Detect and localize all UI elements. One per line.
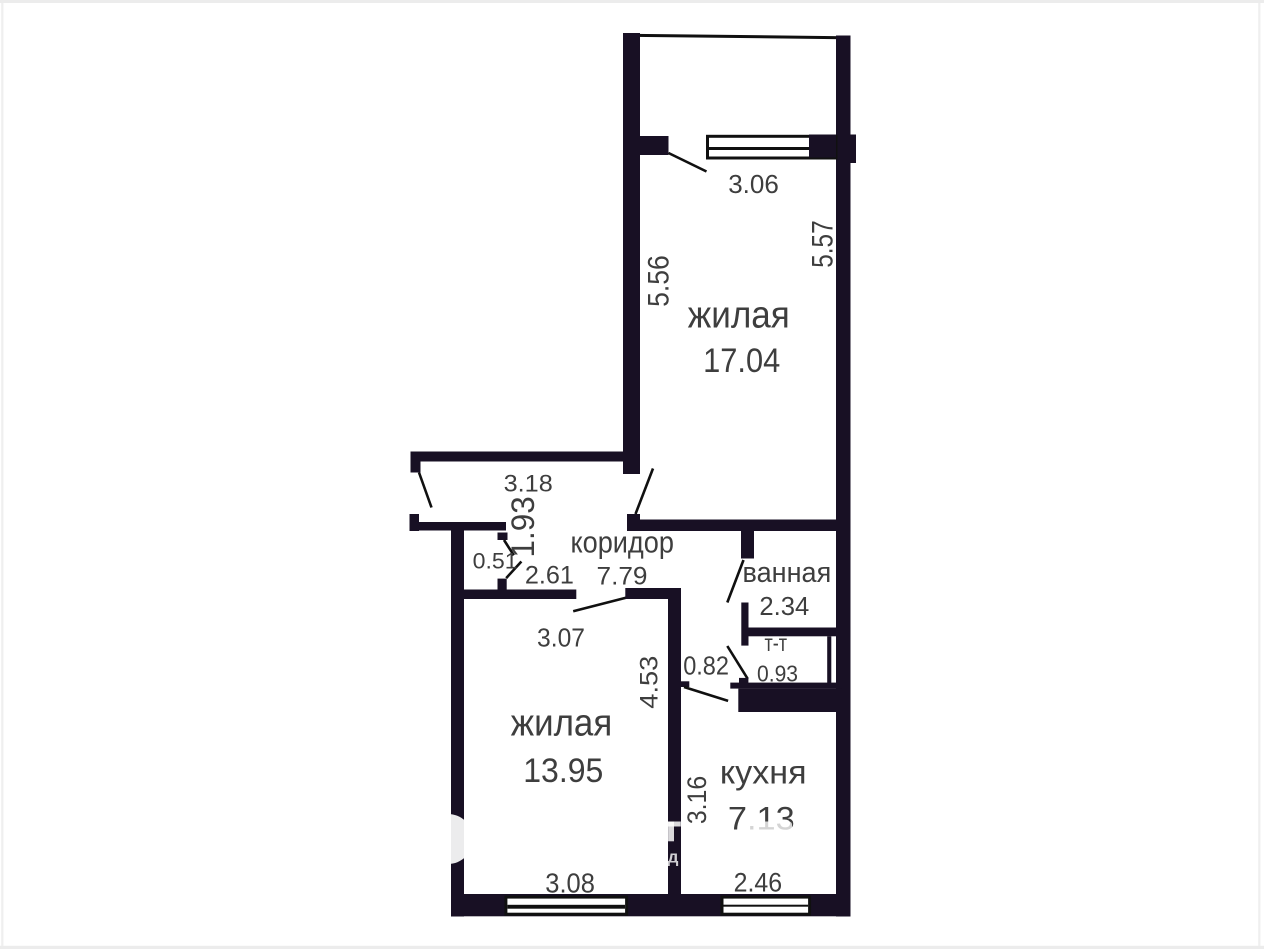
svg-text:2.34: 2.34: [759, 591, 809, 621]
svg-text:коридор: коридор: [570, 525, 674, 560]
svg-text:3.07: 3.07: [537, 624, 585, 652]
svg-text:д: д: [668, 848, 679, 867]
svg-text:2.46: 2.46: [734, 867, 783, 897]
svg-text:кухня: кухня: [720, 755, 807, 792]
svg-text:0.51: 0.51: [473, 548, 518, 573]
svg-text:т-т: т-т: [765, 630, 788, 656]
svg-text:2.61: 2.61: [525, 562, 574, 590]
svg-text:0.82: 0.82: [683, 650, 729, 680]
svg-text:жилая: жилая: [511, 703, 612, 745]
svg-text:17.04: 17.04: [703, 342, 780, 380]
svg-text:5.57: 5.57: [807, 220, 840, 267]
svg-text:13.95: 13.95: [523, 752, 603, 790]
svg-text:5.56: 5.56: [643, 255, 676, 307]
svg-text:0.93: 0.93: [757, 660, 798, 686]
svg-text:3.08: 3.08: [545, 867, 595, 898]
svg-text:жилая: жилая: [688, 295, 790, 337]
svg-text:3.16: 3.16: [682, 776, 712, 824]
svg-text:3.06: 3.06: [728, 169, 779, 199]
svg-text:3.18: 3.18: [504, 470, 553, 497]
svg-text:7.79: 7.79: [597, 563, 648, 591]
svg-text:4.53: 4.53: [636, 656, 664, 709]
svg-text:ванная: ванная: [743, 557, 832, 589]
